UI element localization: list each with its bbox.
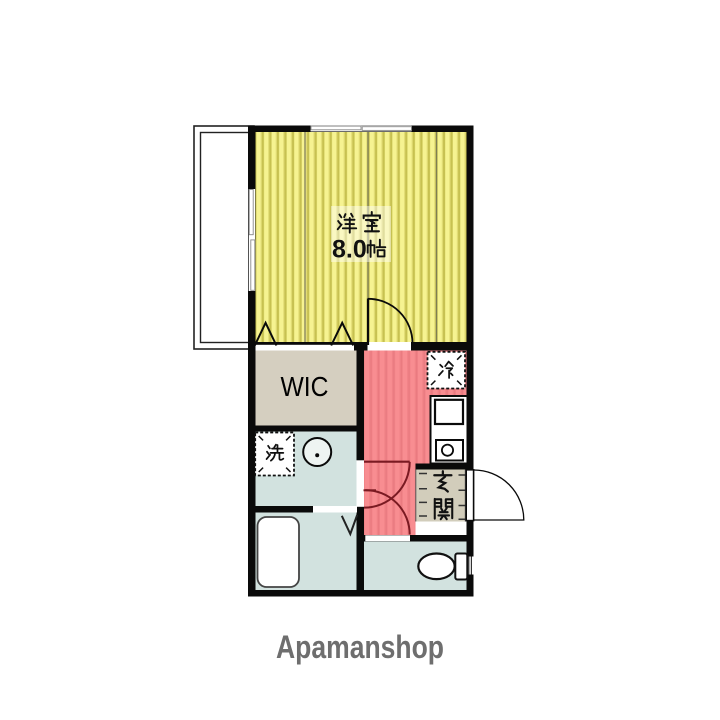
- svg-text:Apamanshop: Apamanshop: [276, 629, 444, 665]
- svg-text:WIC: WIC: [281, 371, 329, 402]
- svg-text:8.0: 8.0: [332, 236, 367, 264]
